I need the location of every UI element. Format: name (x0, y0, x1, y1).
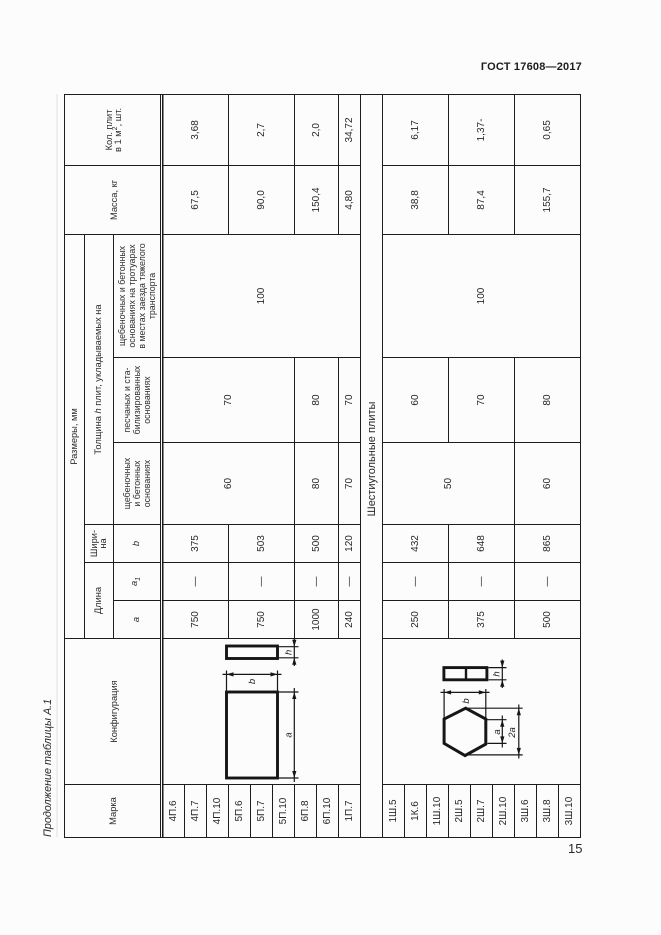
svg-text:2a: 2a (507, 727, 518, 739)
svg-text:b: b (247, 679, 258, 684)
svg-text:h: h (491, 671, 502, 676)
svg-text:b: b (461, 698, 472, 703)
svg-text:a: a (283, 732, 294, 737)
svg-text:a: a (492, 729, 503, 734)
svg-text:h: h (283, 649, 294, 654)
